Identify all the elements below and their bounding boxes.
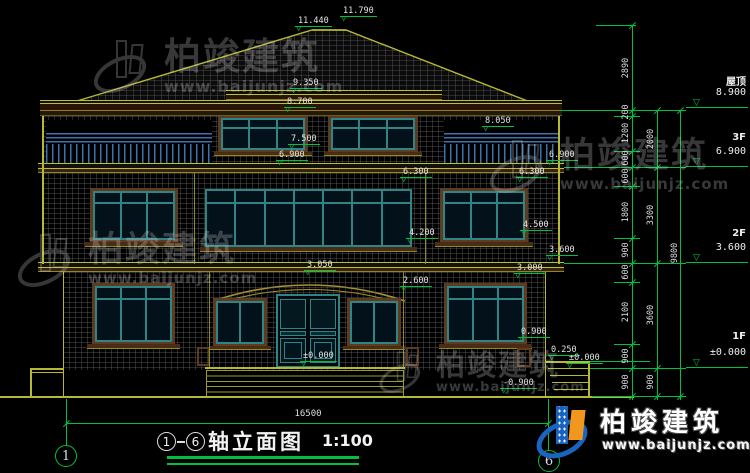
floor-elevation-3f: 6.900 <box>688 146 746 157</box>
floor-label-3f: 3F <box>688 132 746 143</box>
level-mark: 8.050 <box>482 116 514 127</box>
title-axis-end-bubble: 6 <box>186 432 205 451</box>
ext-line-minor <box>614 344 640 345</box>
level-mark: 0.900 <box>518 327 550 338</box>
floor-line-roof <box>686 107 748 108</box>
level-mark: -0.900 <box>500 378 537 389</box>
dim-value: 900 <box>621 374 631 389</box>
dim-value: 200 <box>621 104 631 119</box>
level-mark: 7.500 <box>288 134 320 145</box>
level-mark: 2.600 <box>400 276 432 287</box>
dim-tick <box>676 107 683 114</box>
title-dash <box>177 441 185 443</box>
level-mark: ±0.000 <box>300 351 337 362</box>
level-mark: 11.440 <box>295 16 332 27</box>
cad-elevation-drawing: 16500 1 6 11.790 11.440 9.350 8.700 8.05… <box>0 0 750 473</box>
drawing-scale: 1:100 <box>322 431 373 450</box>
floor-elevation-2f: 3.600 <box>688 242 746 253</box>
level-mark: 4.200 <box>406 228 438 239</box>
ext-line-minor <box>614 186 640 187</box>
ext-line-minor <box>614 282 640 283</box>
floor-label-1f: 1F <box>688 331 746 342</box>
brand-url: www.baijunjz.com <box>602 438 750 453</box>
dim-value: 600 <box>621 150 631 165</box>
level-mark: 4.500 <box>520 220 552 231</box>
floor-line-3f <box>686 166 748 167</box>
level-mark: 9.350 <box>290 78 322 89</box>
title-axis-start-bubble: 1 <box>157 432 176 451</box>
floor-line-2f <box>686 262 748 263</box>
dim-value: 9800 <box>670 243 680 263</box>
level-mark: 11.790 <box>340 6 377 17</box>
dim-value: 3600 <box>646 305 656 325</box>
dim-value: 2000 <box>646 129 656 149</box>
dim-value: 900 <box>646 374 656 389</box>
dim-tick <box>653 365 660 372</box>
dim-tick <box>653 107 660 114</box>
floor-line-1f <box>686 367 748 368</box>
dim-value: 1800 <box>621 202 631 222</box>
level-mark: 6.300 <box>516 167 548 178</box>
dim-value: 3300 <box>646 205 656 225</box>
level-mark: 6.900 <box>546 150 578 161</box>
level-mark: 3.050 <box>304 260 336 271</box>
floor-label-roof: 屋顶 <box>688 73 746 88</box>
dim-value: 600 <box>621 264 631 279</box>
level-mark: 6.900 <box>276 150 308 161</box>
dim-value: 600 <box>621 168 631 183</box>
level-mark: 3.000 <box>514 263 546 274</box>
floor-elevation-roof: 8.900 <box>688 87 746 98</box>
drawing-title: 轴立面图 <box>208 426 304 456</box>
dim-value: 900 <box>621 242 631 257</box>
overall-width-dim: 16500 <box>285 409 331 419</box>
dim-tick <box>628 22 635 29</box>
dim-value: 900 <box>621 348 631 363</box>
level-mark: 6.300 <box>400 167 432 178</box>
brand-name: 柏竣建筑 <box>600 402 724 439</box>
brand-logo-icon <box>534 404 598 464</box>
floor-elevation-1f: ±0.000 <box>688 347 746 358</box>
dim-value: 2100 <box>621 302 631 322</box>
dim-value: 1200 <box>621 123 631 143</box>
level-mark: 8.700 <box>284 97 316 108</box>
dim-tick <box>628 365 635 372</box>
brand-logo: 柏竣建筑 www.baijunjz.com <box>530 396 750 470</box>
ext-line-minor <box>614 238 640 239</box>
floor-label-2f: 2F <box>688 228 746 239</box>
dim-value: 2890 <box>621 58 631 78</box>
dim-tick <box>653 164 660 171</box>
level-mark: ±0.000 <box>566 353 603 364</box>
level-mark: 3.600 <box>546 245 578 256</box>
dim-tick <box>653 260 660 267</box>
